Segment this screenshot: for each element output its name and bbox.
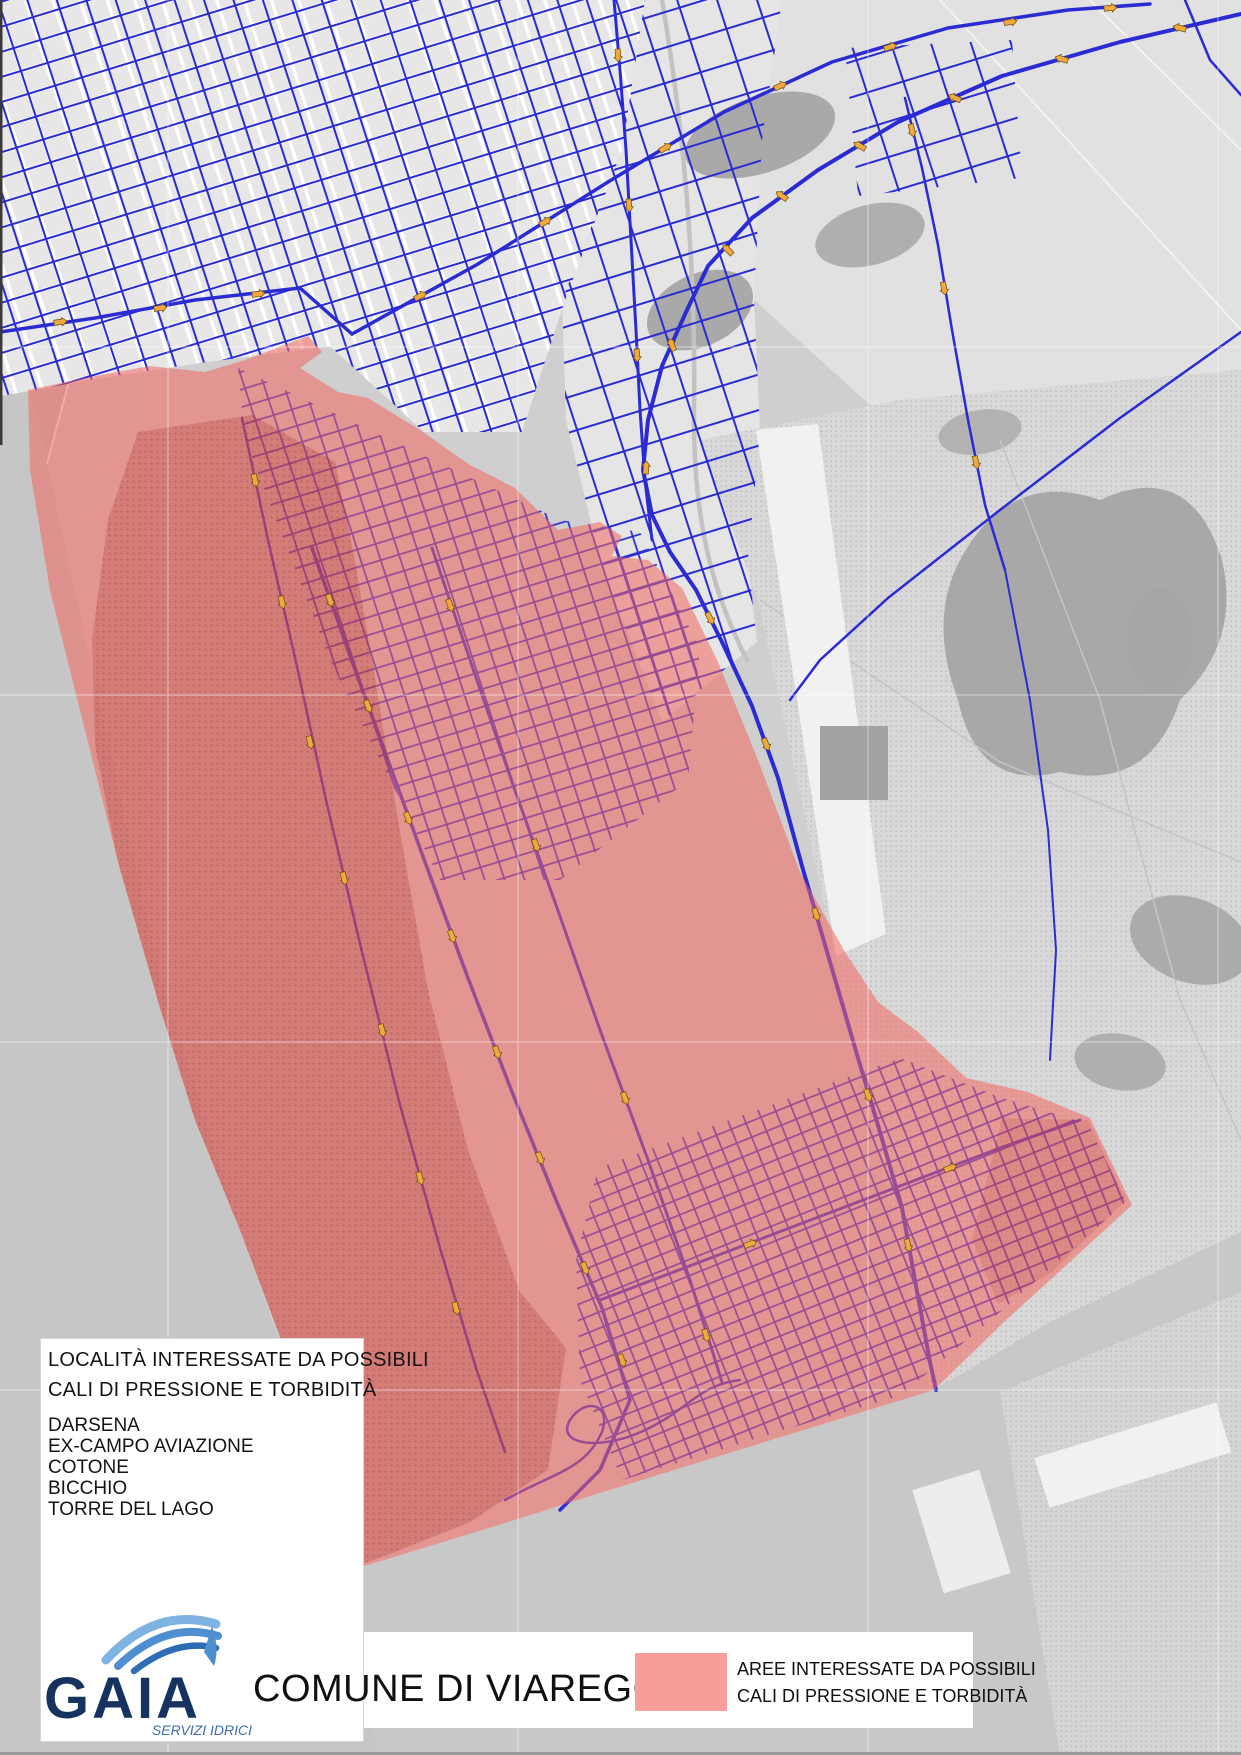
gaia-logo-tagline: SERVIZI IDRICI — [152, 1722, 252, 1738]
locality-title-line2: CALI DI PRESSIONE E TORBIDITÀ — [48, 1375, 359, 1405]
locality-item: TORRE DEL LAGO — [48, 1499, 359, 1520]
legend-label-line1: AREE INTERESSATE DA POSSIBILI — [737, 1656, 1036, 1683]
legend-label-line2: CALI DI PRESSIONE E TORBIDITÀ — [737, 1683, 1036, 1710]
locality-list: DARSENA EX-CAMPO AVIAZIONE COTONE BICCHI… — [48, 1415, 359, 1520]
locality-item: COTONE — [48, 1457, 359, 1478]
locality-item: DARSENA — [48, 1415, 359, 1436]
gaia-swoosh-icon — [106, 1620, 218, 1672]
legend-label: AREE INTERESSATE DA POSSIBILI CALI DI PR… — [737, 1656, 1036, 1710]
gaia-logo: GAIA SERVIZI IDRICI — [44, 1608, 254, 1740]
map-page: LOCALITÀ INTERESSATE DA POSSIBILI CALI D… — [0, 0, 1241, 1755]
locality-title-line1: LOCALITÀ INTERESSATE DA POSSIBILI — [48, 1345, 359, 1375]
legend-swatch — [635, 1653, 727, 1711]
locality-item: BICCHIO — [48, 1478, 359, 1499]
locality-item: EX-CAMPO AVIAZIONE — [48, 1436, 359, 1457]
